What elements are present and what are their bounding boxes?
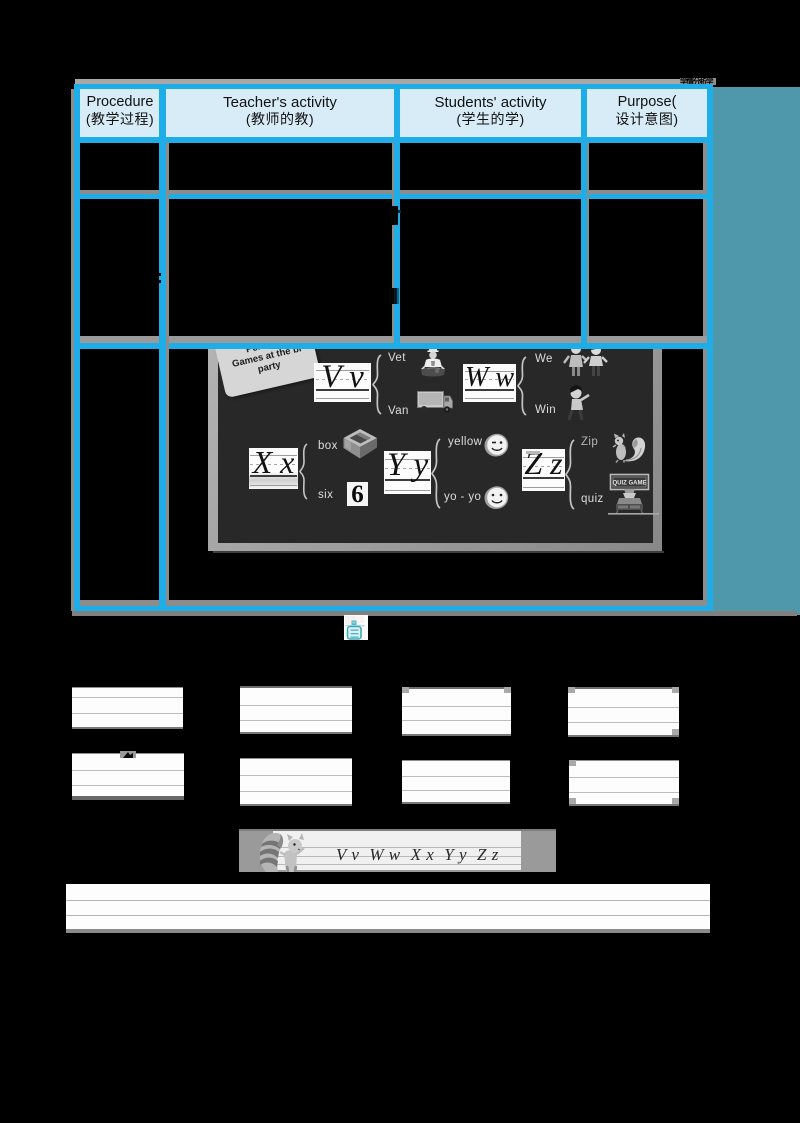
svg-text:QUIZ GAME: QUIZ GAME xyxy=(613,481,647,487)
